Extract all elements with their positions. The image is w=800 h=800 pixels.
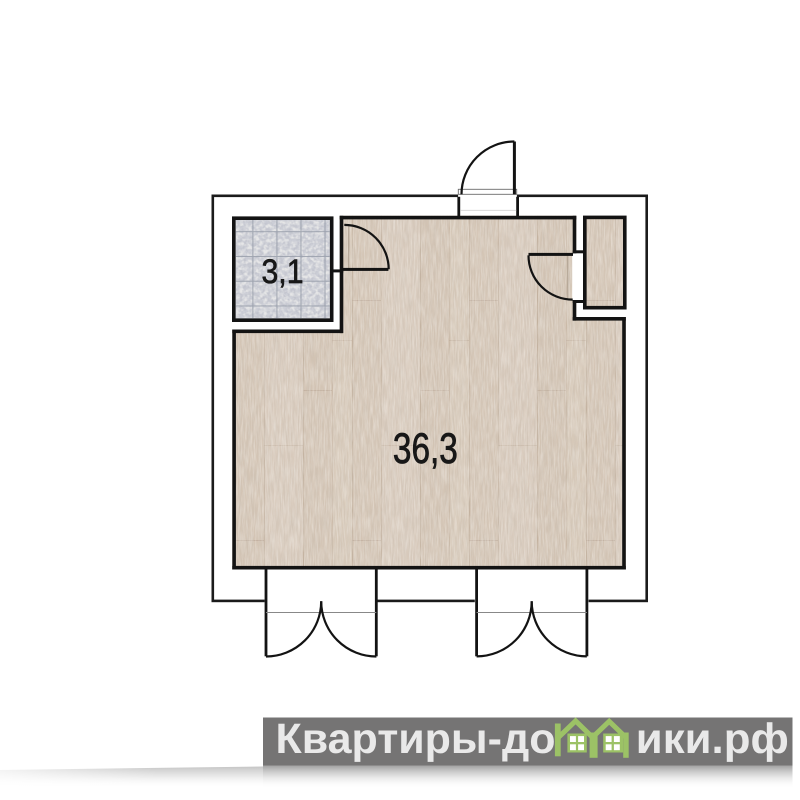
svg-text:Квартиры-до: Квартиры-до [276,716,556,763]
svg-text:36,3: 36,3 [393,425,458,473]
svg-text:3,1: 3,1 [262,253,304,291]
svg-text:ики.рф: ики.рф [636,716,789,763]
